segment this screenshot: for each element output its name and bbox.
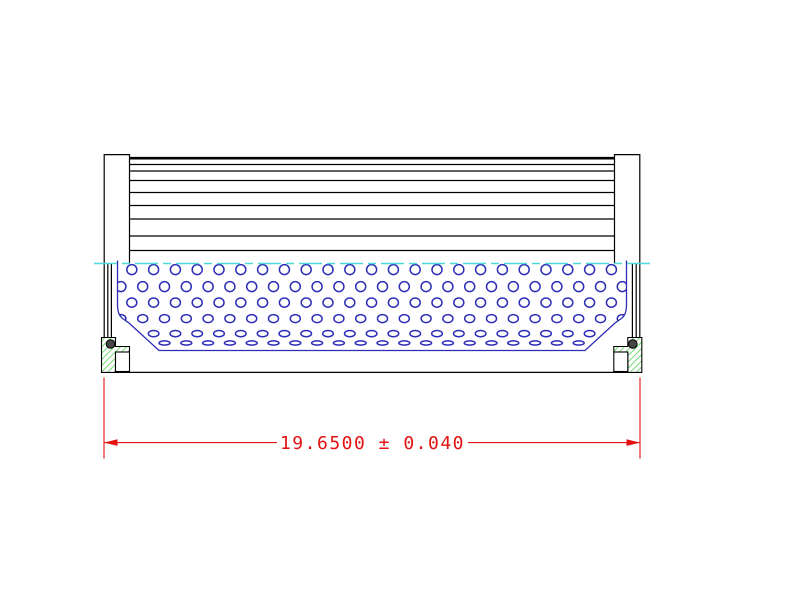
right-gasket-notch xyxy=(614,352,628,372)
right-arrowhead-icon xyxy=(627,439,641,446)
left-oring xyxy=(106,340,115,349)
left-arrowhead-icon xyxy=(104,439,118,446)
dimension-label: 19.6500 ± 0.040 xyxy=(280,433,465,454)
right-seal-gasket xyxy=(614,338,642,373)
filter-cross-section-drawing: 19.6500 ± 0.040 xyxy=(0,0,810,600)
pleated-media-block xyxy=(130,158,615,250)
perforation-holes xyxy=(94,265,650,346)
perforated-core xyxy=(94,261,650,351)
media-wrap-lines xyxy=(130,165,615,251)
dimension-annotation: 19.6500 ± 0.040 xyxy=(104,378,640,459)
technical-drawing-canvas: 19.6500 ± 0.040 xyxy=(0,0,810,600)
right-oring xyxy=(629,340,638,349)
left-gasket-notch xyxy=(116,352,130,372)
left-seal-gasket xyxy=(102,338,130,373)
